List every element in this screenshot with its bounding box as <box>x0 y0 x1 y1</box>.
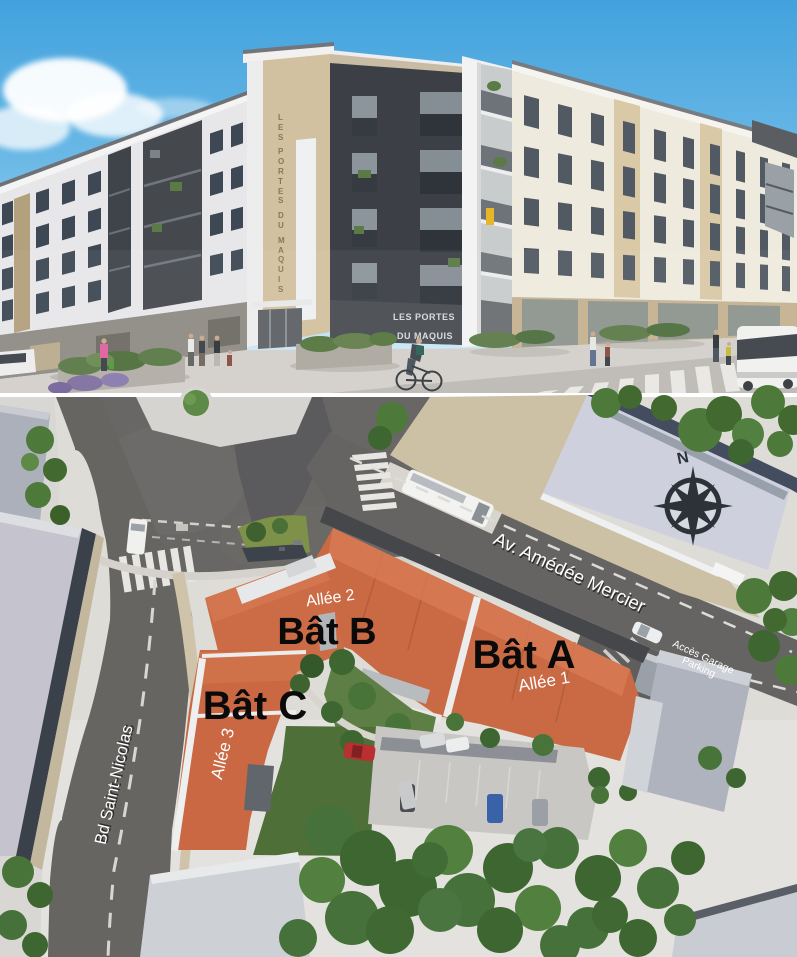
svg-text:Bât B: Bât B <box>277 611 376 653</box>
svg-text:Bât C: Bât C <box>203 684 307 728</box>
